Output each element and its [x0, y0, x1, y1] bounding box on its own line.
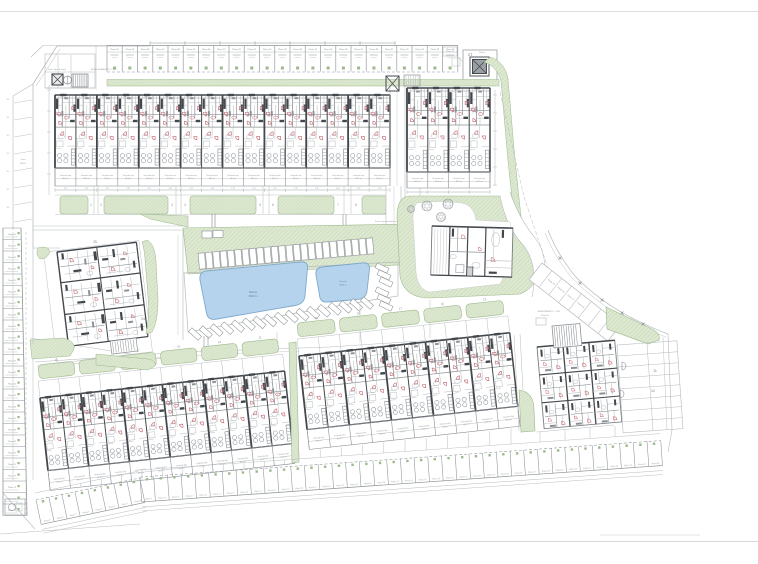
svg-text:86.6 m: 86.6 m: [435, 181, 441, 183]
svg-text:Plaza 44: Plaza 44: [202, 49, 211, 51]
svg-text:Vivienda tipo: Vivienda tipo: [248, 174, 260, 177]
svg-text:4.35: 4.35: [336, 188, 340, 190]
svg-text:8.5: 8.5: [7, 99, 10, 101]
svg-text:CT: CT: [468, 53, 472, 57]
svg-text:86.6 m: 86.6 m: [251, 178, 257, 180]
svg-text:8.5: 8.5: [7, 153, 10, 155]
svg-text:Vivienda tipo: Vivienda tipo: [269, 174, 281, 177]
svg-text:4.35: 4.35: [85, 188, 89, 190]
svg-text:Plaza 50: Plaza 50: [110, 49, 119, 51]
svg-text:Plaza 40: Plaza 40: [263, 49, 272, 51]
svg-text:8.5: 8.5: [7, 117, 10, 119]
svg-text:Piscina: Piscina: [339, 281, 347, 283]
svg-text:Plaza 72: Plaza 72: [8, 476, 17, 478]
svg-text:4.35: 4.35: [294, 188, 298, 190]
svg-text:Plaza 73: Plaza 73: [8, 487, 17, 489]
svg-text:86.6 m: 86.6 m: [335, 178, 341, 180]
svg-text:APARCAMIENTO - CMF: APARCAMIENTO - CMF: [538, 310, 561, 313]
svg-text:86.6 m: 86.6 m: [83, 178, 89, 180]
svg-text:Plaza 42: Plaza 42: [232, 49, 241, 51]
svg-text:Plaza 68: Plaza 68: [8, 430, 17, 432]
svg-text:4.35: 4.35: [252, 188, 256, 190]
svg-text:Vivienda tipo: Vivienda tipo: [60, 174, 72, 177]
svg-text:Plaza 47: Plaza 47: [156, 49, 165, 51]
svg-text:ALMACENAMIENTO COM: ALMACENAMIENTO COM: [91, 68, 115, 71]
svg-text:Plaza 71: Plaza 71: [8, 464, 17, 466]
svg-text:Plaza 37: Plaza 37: [309, 49, 318, 51]
svg-text:Plaza 43: Plaza 43: [217, 49, 226, 51]
svg-text:1: 1: [90, 203, 92, 207]
svg-text:Plaza 35: Plaza 35: [339, 49, 348, 51]
svg-text:Plaza 59: Plaza 59: [8, 326, 17, 328]
svg-text:Vivienda tipo: Vivienda tipo: [102, 174, 114, 177]
svg-text:Vivienda tipo: Vivienda tipo: [206, 174, 218, 177]
svg-text:86.6 m: 86.6 m: [314, 178, 320, 180]
svg-text:8.5: 8.5: [7, 207, 10, 209]
svg-text:86.6 m: 86.6 m: [104, 178, 110, 180]
svg-text:Vivienda tipo: Vivienda tipo: [311, 174, 323, 177]
svg-text:3: 3: [171, 203, 173, 207]
svg-text:Plaza 55: Plaza 55: [8, 280, 17, 282]
svg-text:86.6 m: 86.6 m: [456, 181, 462, 183]
svg-text:86.6 m: 86.6 m: [356, 178, 362, 180]
svg-text:Plaza 38: Plaza 38: [293, 49, 302, 51]
svg-text:Vivienda tipo: Vivienda tipo: [185, 174, 197, 177]
svg-text:4.35: 4.35: [168, 188, 172, 190]
svg-text:Vivienda tipo: Vivienda tipo: [332, 174, 344, 177]
svg-text:8.5: 8.5: [7, 171, 10, 173]
svg-text:86.6 m: 86.6 m: [209, 178, 215, 180]
svg-text:Vivienda tipo: Vivienda tipo: [290, 174, 302, 177]
svg-text:4.35: 4.35: [106, 188, 110, 190]
svg-text:Piscina: Piscina: [249, 291, 257, 294]
svg-text:Plaza 58: Plaza 58: [8, 315, 17, 317]
svg-text:4.35: 4.35: [210, 188, 214, 190]
svg-text:5: 5: [259, 203, 261, 207]
svg-text:Plaza 32: Plaza 32: [385, 49, 394, 51]
svg-text:86.6 m: 86.6 m: [293, 178, 299, 180]
svg-text:Vivienda tipo: Vivienda tipo: [164, 174, 176, 177]
svg-text:86.6 m: 86.6 m: [376, 178, 382, 180]
svg-text:86.6 m: 86.6 m: [272, 178, 278, 180]
svg-text:Plaza 34: Plaza 34: [354, 49, 363, 51]
svg-text:4.35: 4.35: [64, 188, 68, 190]
svg-text:4.35: 4.35: [273, 188, 277, 190]
svg-text:Zona: Zona: [21, 159, 27, 161]
svg-text:Plaza 48: Plaza 48: [141, 49, 150, 51]
svg-text:8.5: 8.5: [7, 189, 10, 191]
svg-text:Plaza 54: Plaza 54: [8, 269, 17, 271]
svg-text:4.35: 4.35: [231, 188, 235, 190]
svg-text:Plaza 52: Plaza 52: [8, 246, 17, 248]
svg-text:11: 11: [653, 369, 657, 373]
svg-text:Vivienda tipo: Vivienda tipo: [432, 177, 444, 180]
svg-text:86.6 m: 86.6 m: [62, 178, 68, 180]
svg-text:Plaza 40: Plaza 40: [541, 315, 550, 317]
svg-text:Vivienda tipo: Vivienda tipo: [353, 174, 365, 177]
svg-text:Plaza 61: Plaza 61: [8, 349, 17, 351]
svg-text:Plaza 53: Plaza 53: [8, 257, 17, 259]
svg-text:86.6 m: 86.6 m: [477, 181, 483, 183]
svg-text:Plaza 65: Plaza 65: [8, 395, 17, 397]
svg-text:Plaza 46: Plaza 46: [171, 49, 180, 51]
svg-text:Zonas aguas bombonas: Zonas aguas bombonas: [375, 221, 396, 223]
svg-text:86.6 m: 86.6 m: [188, 178, 194, 180]
svg-text:Plaza 67: Plaza 67: [8, 418, 17, 420]
svg-text:4: 4: [184, 203, 186, 207]
svg-text:Plaza 64: Plaza 64: [8, 384, 17, 386]
svg-text:4.35: 4.35: [357, 188, 361, 190]
svg-text:Vivienda tipo: Vivienda tipo: [453, 177, 465, 180]
svg-text:Plaza 57: Plaza 57: [8, 303, 17, 305]
svg-text:8: 8: [355, 203, 357, 207]
svg-text:Plaza 29: Plaza 29: [431, 49, 440, 51]
svg-text:2: 2: [100, 203, 102, 207]
svg-text:PB BL: PB BL: [20, 163, 27, 165]
svg-text:12: 12: [651, 389, 655, 393]
svg-text:Zonas agua B bomb.: Zonas agua B bomb.: [48, 69, 67, 71]
svg-text:24: 24: [141, 317, 145, 321]
svg-text:Vivienda tipo: Vivienda tipo: [227, 174, 239, 177]
svg-text:4.35: 4.35: [189, 188, 193, 190]
svg-text:4.35: 4.35: [127, 188, 131, 190]
svg-text:306.8 m: 306.8 m: [249, 295, 258, 298]
svg-text:Plaza 45: Plaza 45: [187, 49, 196, 51]
svg-text:Plaza 31: Plaza 31: [400, 49, 409, 51]
svg-text:Plaza 62: Plaza 62: [8, 361, 17, 363]
svg-text:Plaza 39: Plaza 39: [278, 49, 287, 51]
svg-text:6: 6: [272, 203, 274, 207]
svg-text:Vivienda tipo: Vivienda tipo: [412, 177, 424, 180]
svg-text:86.6 m: 86.6 m: [414, 181, 420, 183]
svg-text:Plaza 33: Plaza 33: [370, 49, 379, 51]
svg-text:Plaza 69: Plaza 69: [8, 441, 17, 443]
svg-text:86.6 m: 86.6 m: [230, 178, 236, 180]
svg-text:Plaza 60: Plaza 60: [8, 338, 17, 340]
svg-text:Plaza 70: Plaza 70: [8, 453, 17, 455]
svg-text:Vivienda tipo: Vivienda tipo: [143, 174, 155, 177]
svg-text:Plaza 49: Plaza 49: [126, 49, 135, 51]
svg-text:Plaza 41: Plaza 41: [248, 49, 257, 51]
svg-text:Planta: Planta: [479, 51, 486, 54]
svg-text:Plaza 63: Plaza 63: [8, 372, 17, 374]
svg-text:Plaza 56: Plaza 56: [8, 292, 17, 294]
svg-text:Plaza 30: Plaza 30: [415, 49, 424, 51]
svg-text:Vivienda tipo: Vivienda tipo: [81, 174, 93, 177]
svg-text:86.6 m: 86.6 m: [125, 178, 131, 180]
svg-text:Plaza 36: Plaza 36: [324, 49, 333, 51]
svg-text:7: 7: [337, 203, 339, 207]
svg-text:Vivienda tipo: Vivienda tipo: [123, 174, 135, 177]
svg-text:Plaza 49: Plaza 49: [446, 51, 455, 53]
svg-text:4.35: 4.35: [315, 188, 319, 190]
svg-text:8.5: 8.5: [7, 135, 10, 137]
svg-text:68.9 m: 68.9 m: [340, 285, 347, 287]
svg-text:Plaza 51: Plaza 51: [8, 234, 17, 236]
svg-text:Plaza 66: Plaza 66: [8, 407, 17, 409]
svg-text:Vivienda tipo: Vivienda tipo: [374, 174, 386, 177]
svg-text:86.6 m: 86.6 m: [167, 178, 173, 180]
svg-text:4.35: 4.35: [148, 188, 152, 190]
svg-text:4.35: 4.35: [378, 188, 382, 190]
svg-text:Vivienda tipo: Vivienda tipo: [474, 177, 486, 180]
svg-text:86.6 m: 86.6 m: [146, 178, 152, 180]
svg-text:25: 25: [93, 240, 97, 244]
